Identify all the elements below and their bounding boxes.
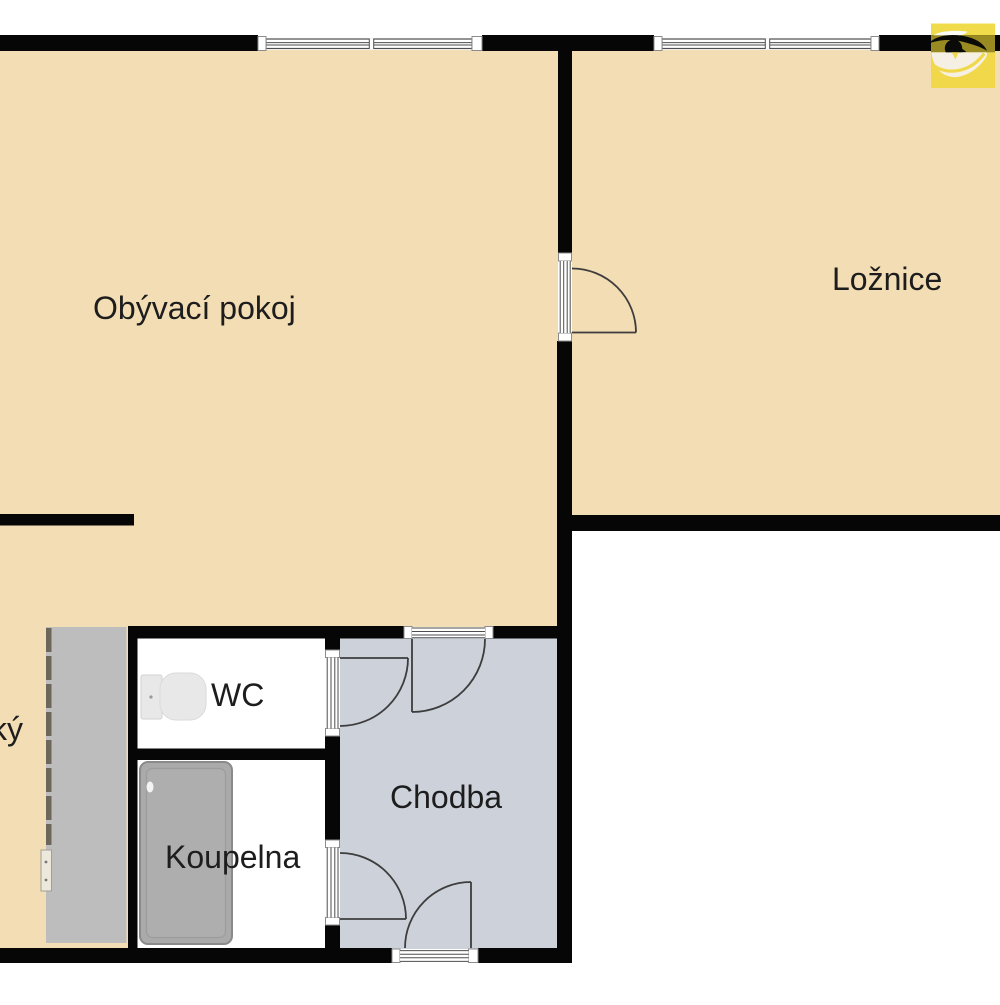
- svg-text:Chodba: Chodba: [390, 779, 502, 815]
- svg-text:Obývací pokoj: Obývací pokoj: [93, 290, 296, 326]
- svg-text:Ložnice: Ložnice: [832, 261, 942, 297]
- svg-text:ký: ký: [0, 711, 23, 747]
- svg-text:Koupelna: Koupelna: [165, 839, 300, 875]
- svg-text:WC: WC: [211, 677, 264, 713]
